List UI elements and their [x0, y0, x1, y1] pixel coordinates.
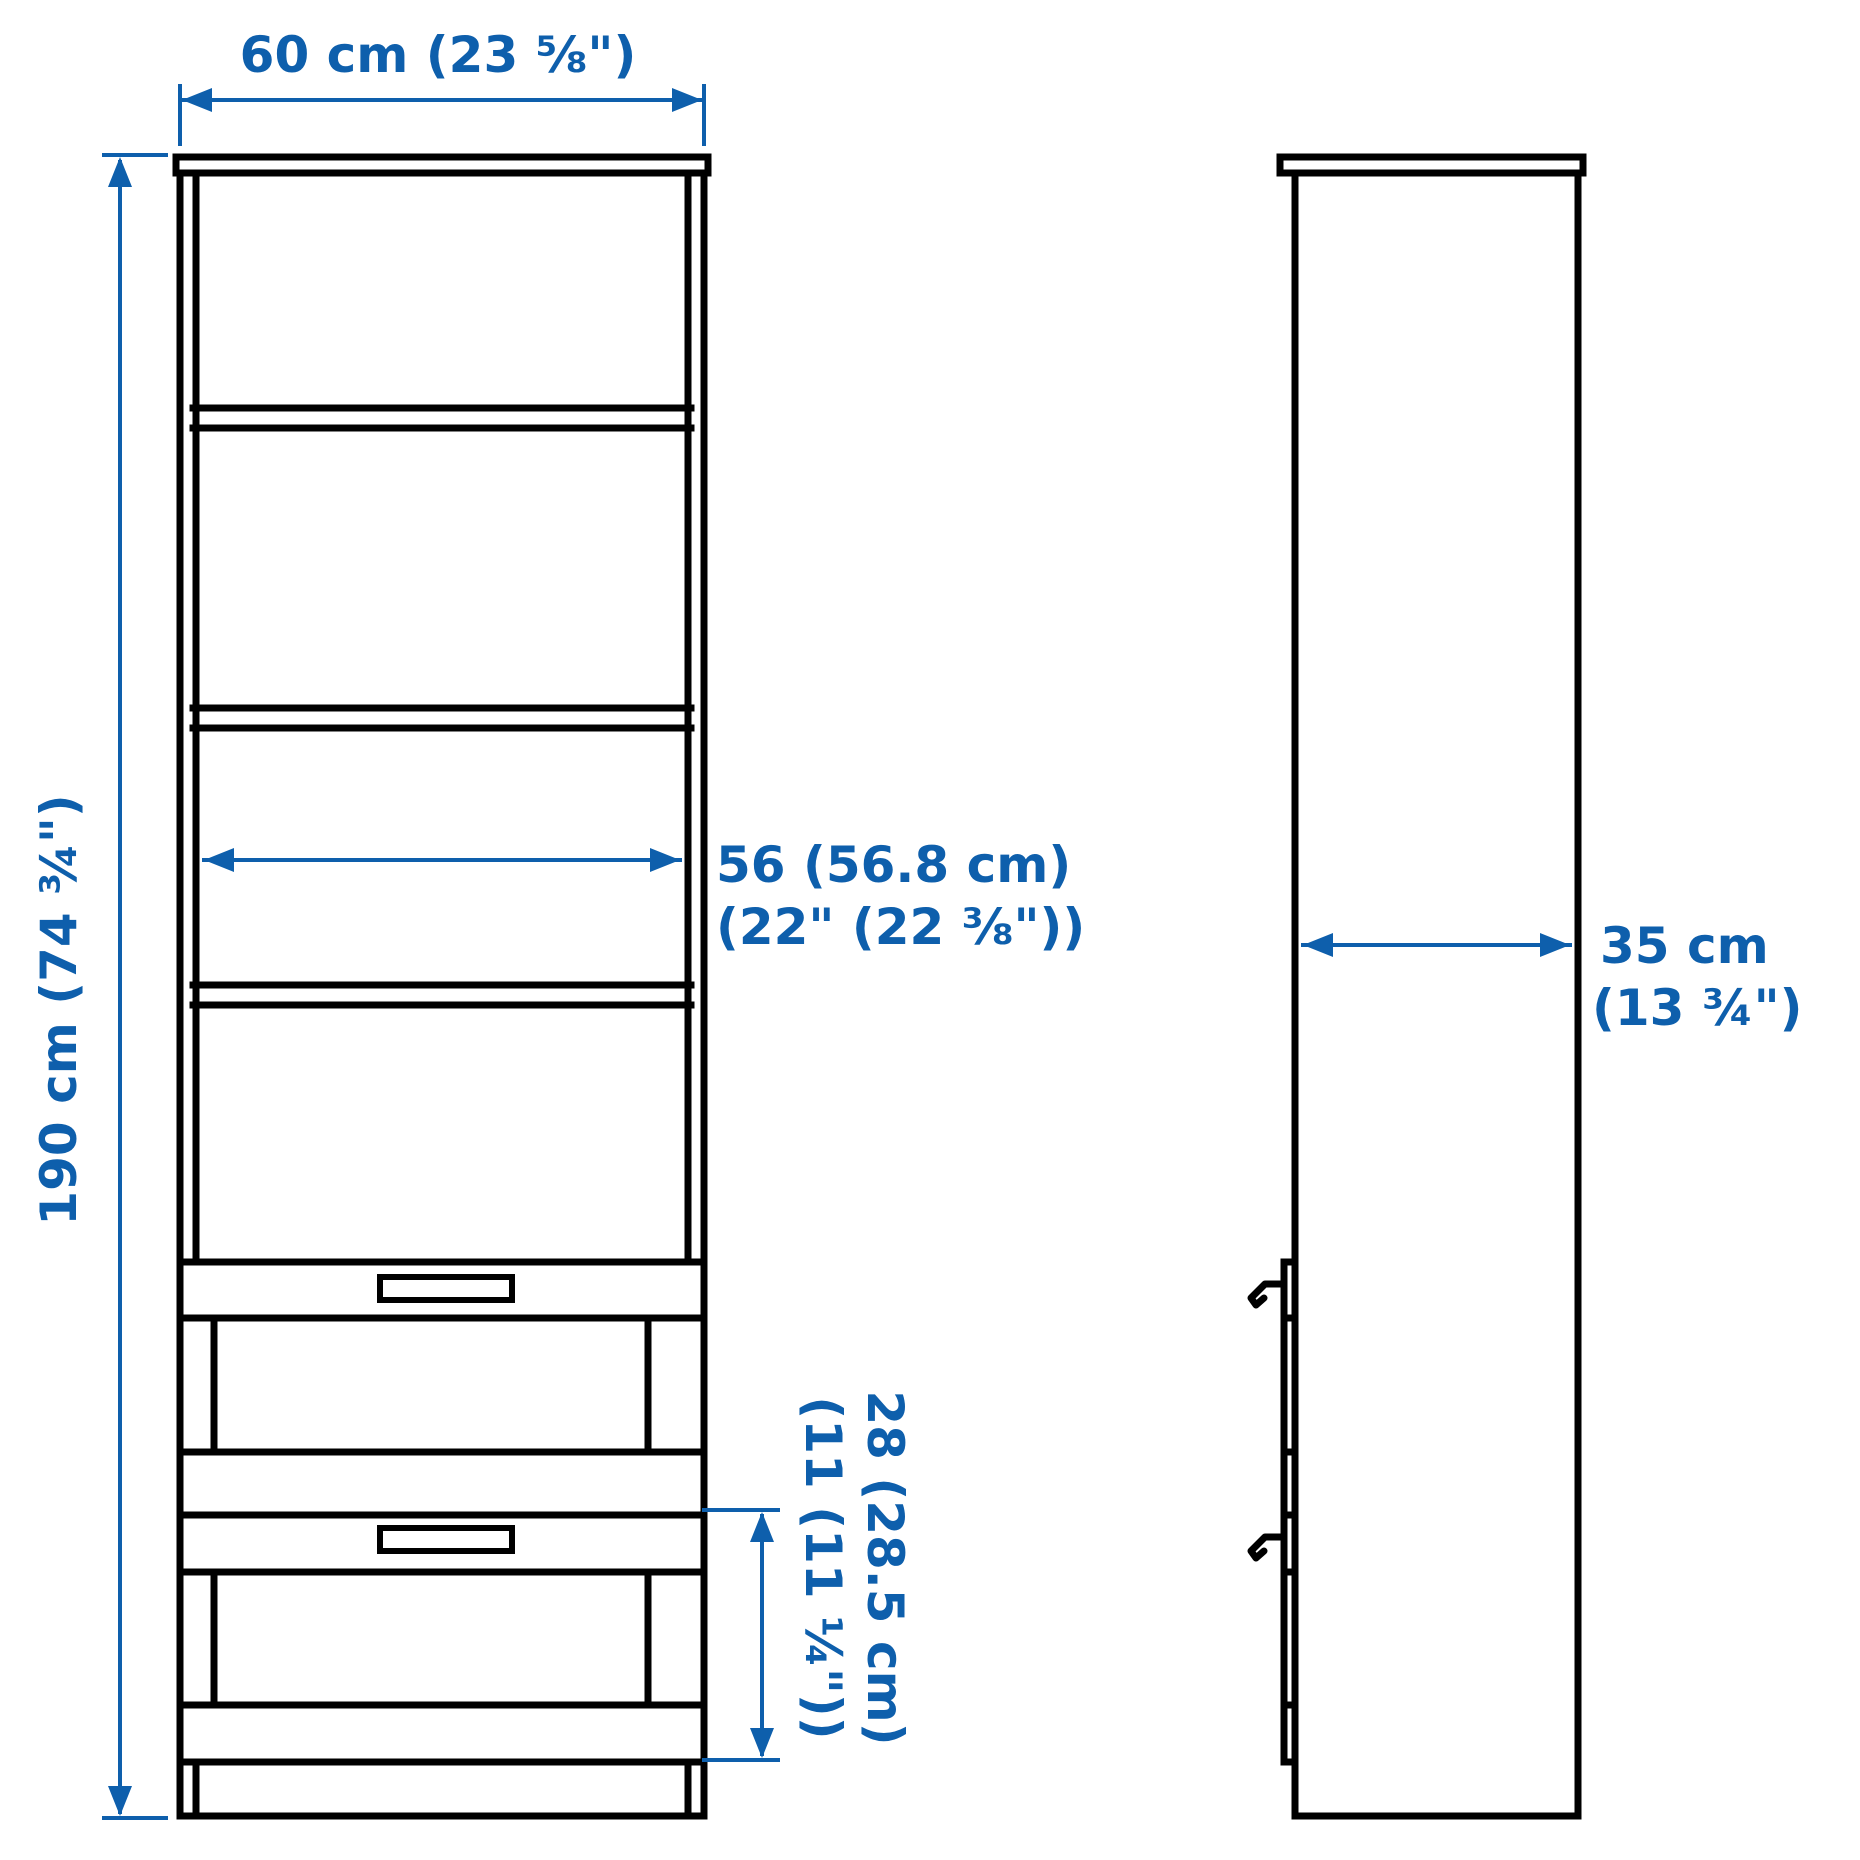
- front-view: [176, 157, 708, 1816]
- side-drawer2-handle-hook: [1251, 1537, 1284, 1558]
- dimension-drawer-height: 28 (28.5 cm) (11 (11 ¼")): [702, 1390, 914, 1760]
- drawer-height-label-line2: (11 (11 ¼")): [794, 1396, 852, 1739]
- depth-label-line2: (13 ¾"): [1592, 979, 1803, 1037]
- dimension-diagram: 60 cm (23 ⅝") 190 cm (74 ¾") 56 (56.8 cm…: [0, 0, 1860, 1860]
- depth-arrowhead-left: [1303, 933, 1333, 957]
- drawer1-handle: [380, 1277, 512, 1300]
- height-arrowhead-bottom: [108, 1786, 132, 1816]
- diagram-canvas: 60 cm (23 ⅝") 190 cm (74 ¾") 56 (56.8 cm…: [0, 0, 1860, 1860]
- dimension-overall-width: 60 cm (23 ⅝"): [180, 26, 704, 146]
- depth-arrowhead-right: [1540, 933, 1570, 957]
- height-label: 190 cm (74 ¾"): [30, 794, 88, 1225]
- width-arrowhead-left: [182, 88, 212, 112]
- interior-width-label-line1: 56 (56.8 cm): [716, 836, 1071, 894]
- interior-width-arrowhead-right: [650, 848, 680, 872]
- dimension-interior-width: 56 (56.8 cm) (22" (22 ⅜")): [202, 836, 1085, 956]
- dimension-overall-height: 190 cm (74 ¾"): [30, 155, 168, 1818]
- depth-label-line1: 35 cm: [1600, 917, 1769, 975]
- side-view: [1251, 157, 1583, 1816]
- side-body-outline: [1295, 173, 1578, 1816]
- width-label: 60 cm (23 ⅝"): [240, 26, 637, 84]
- width-arrowhead-right: [672, 88, 702, 112]
- interior-width-label-line2: (22" (22 ⅜")): [716, 898, 1085, 956]
- height-arrowhead-top: [108, 157, 132, 187]
- drawer1-inset-panel: [214, 1318, 648, 1452]
- side-drawer1-handle-hook: [1251, 1284, 1284, 1305]
- drawer-height-label-line1: 28 (28.5 cm): [856, 1390, 914, 1745]
- drawer-height-arrowhead-top: [750, 1512, 774, 1542]
- plinth: [196, 1765, 688, 1813]
- dimension-overall-depth: 35 cm (13 ¾"): [1301, 917, 1803, 1037]
- drawer2-inset-panel: [214, 1572, 648, 1705]
- interior-width-arrowhead-left: [204, 848, 234, 872]
- drawer2-handle: [380, 1528, 512, 1551]
- shelf-1: [193, 408, 691, 428]
- drawer-height-arrowhead-bottom: [750, 1728, 774, 1758]
- shelf-3: [193, 985, 691, 1005]
- shelf-2: [193, 708, 691, 728]
- drawer-height-label: 28 (28.5 cm) (11 (11 ¼")): [794, 1390, 914, 1745]
